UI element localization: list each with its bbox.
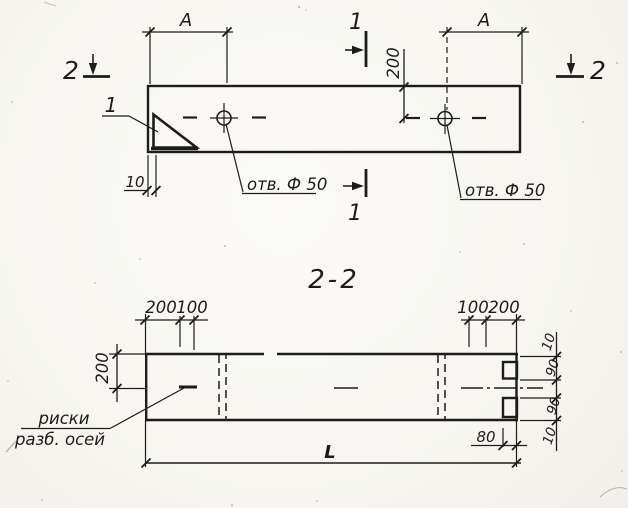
plan-view: 1 A — [63, 10, 606, 226]
view-direction-arrow-icon — [567, 63, 575, 75]
dim-200-label: 200 — [488, 298, 520, 317]
dim-top-right: 100 200 — [457, 298, 525, 353]
dim-200-label: 200 — [384, 47, 403, 79]
dim-a-right-label: A — [477, 10, 490, 31]
hole-label-left: отв. Ф 50 — [247, 175, 327, 194]
axes-note: риски разб. осей — [14, 388, 184, 449]
hole-callout-right: отв. Ф 50 — [447, 125, 545, 200]
dim-10-edge-gap: 10 — [124, 155, 161, 197]
dim-a-right: A — [439, 10, 529, 110]
section-cut-1-bottom: 1 — [343, 169, 366, 226]
dim-80-notch-depth: 80 — [471, 428, 527, 450]
section-cut-1-top: 1 — [345, 10, 366, 67]
axes-note-line2: разб. осей — [14, 430, 105, 449]
dim-right-column: 10 90 90 10 — [520, 331, 564, 451]
dim-top-left: 200 100 — [135, 298, 208, 353]
dim-overall-length: L — [142, 421, 522, 468]
dim-a-left-label: A — [179, 10, 192, 31]
section2-left-label: 2 — [63, 56, 79, 85]
view-direction-arrow-icon — [352, 182, 364, 190]
end-notch-top — [503, 362, 517, 379]
dim-100-label: 100 — [176, 298, 208, 317]
section2-right-label: 2 — [590, 56, 606, 85]
section-title: 2-2 — [308, 265, 359, 295]
callout-leader-line — [102, 116, 158, 132]
axes-note-line1: риски — [38, 409, 90, 428]
dim-a-left: A — [142, 10, 233, 84]
end-notch-bottom — [503, 398, 517, 417]
drawing-canvas: 1 A — [0, 0, 628, 508]
section1-bottom-label: 1 — [348, 201, 362, 226]
anchor-hole-left — [183, 103, 266, 133]
view-direction-arrow-icon — [89, 63, 97, 75]
dim-10-label: 10 — [540, 425, 561, 446]
corner-callout: 1 — [102, 93, 158, 132]
blueprint-page: 1 A — [0, 0, 628, 508]
section1-top-label: 1 — [349, 10, 363, 35]
dim-80-label: 80 — [476, 428, 495, 446]
view-direction-arrow-icon — [352, 46, 364, 54]
dim-10-label: 10 — [125, 173, 144, 191]
dim-200-label: 200 — [145, 298, 177, 317]
corner-callout-label: 1 — [105, 93, 118, 117]
beam-outline — [148, 86, 520, 152]
section-view: 2-2 — [14, 265, 564, 468]
joint-dashed-lines — [219, 355, 445, 420]
dim-left-200-label: 200 — [93, 352, 112, 384]
section-cut-2-left: 2 — [63, 54, 110, 85]
setting-out-axis — [109, 387, 543, 389]
panel-outline — [145, 353, 518, 422]
dim-100-label: 100 — [457, 298, 489, 317]
anchor-hole-right — [406, 104, 486, 134]
dim-left-200: 200 — [93, 344, 145, 402]
section-cut-2-right: 2 — [556, 54, 606, 85]
hole-callout-left: отв. Ф 50 — [226, 124, 327, 194]
hole-label-right: отв. Ф 50 — [465, 181, 545, 200]
dim-length-label: L — [324, 442, 335, 463]
